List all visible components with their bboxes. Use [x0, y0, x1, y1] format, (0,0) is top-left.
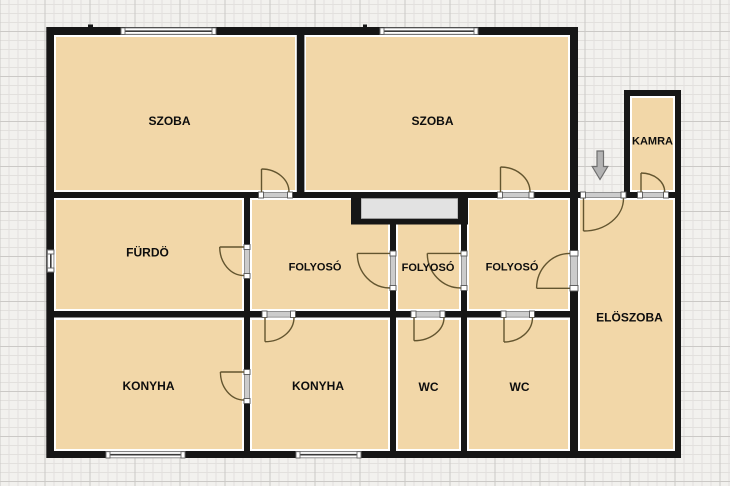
- svg-text:FOLYOSÓ: FOLYOSÓ: [402, 261, 455, 274]
- svg-text:KAMRA: KAMRA: [632, 136, 673, 148]
- svg-text:FOLYOSÓ: FOLYOSÓ: [486, 261, 539, 274]
- svg-text:ELÖSZOBA: ELÖSZOBA: [596, 310, 663, 325]
- svg-text:SZOBA: SZOBA: [149, 114, 191, 128]
- svg-text:SZOBA: SZOBA: [412, 114, 454, 128]
- svg-text:WC: WC: [510, 380, 530, 394]
- svg-text:KONYHA: KONYHA: [122, 379, 174, 393]
- svg-text:KONYHA: KONYHA: [292, 379, 344, 393]
- svg-text:FOLYOSÓ: FOLYOSÓ: [289, 261, 342, 274]
- svg-text:WC: WC: [419, 380, 439, 394]
- svg-text:FÜRDÖ: FÜRDÖ: [126, 245, 169, 260]
